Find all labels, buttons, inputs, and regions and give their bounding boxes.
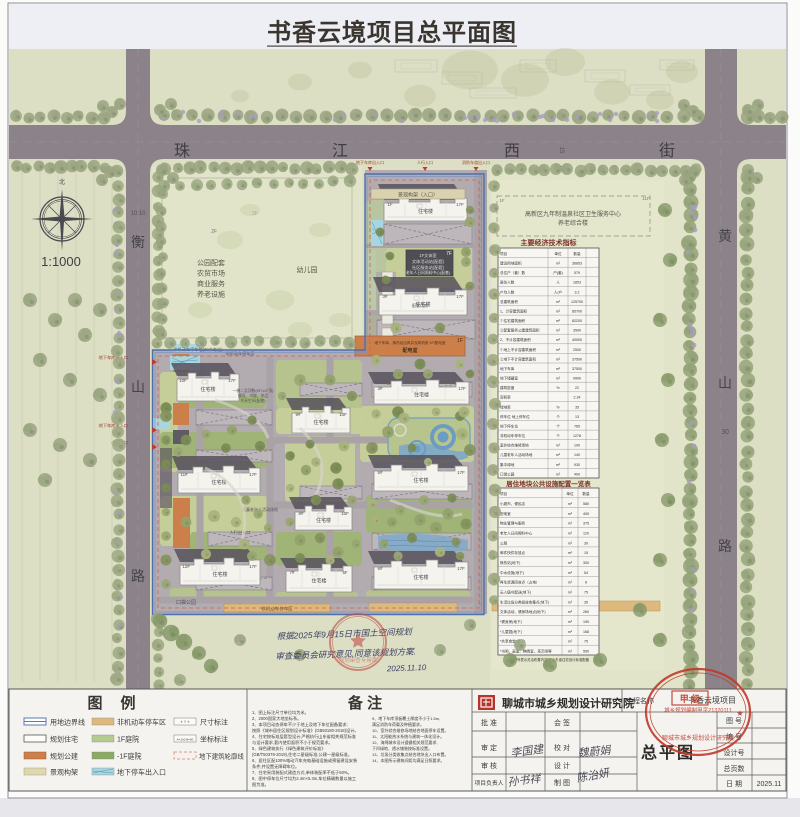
svg-text:11#: 11#: [181, 472, 189, 477]
svg-text:2、2000国家大地坐标系。: 2、2000国家大地坐标系。: [252, 715, 301, 722]
svg-text:老年人日间照料中心: 老年人日间照料中心: [500, 531, 533, 536]
svg-text:190: 190: [583, 620, 589, 624]
svg-text:配电室: 配电室: [500, 511, 511, 516]
svg-text:地下停车出入口: 地下停车出入口: [117, 768, 166, 777]
svg-text:审 核: 审 核: [481, 761, 497, 770]
svg-text:山: 山: [131, 379, 145, 395]
svg-text:幼儿园: 幼儿园: [297, 265, 318, 274]
svg-text:书香云境项目总平面图: 书香云境项目总平面图: [267, 19, 517, 47]
svg-text:1F文体室: 1F文体室: [419, 252, 436, 259]
svg-text:54: 54: [584, 571, 588, 575]
svg-text:2.34: 2.34: [574, 396, 581, 400]
svg-text:会 签: 会 签: [554, 718, 570, 727]
svg-text:-1F庭院: -1F庭院: [117, 752, 142, 761]
svg-text:580: 580: [583, 502, 589, 506]
svg-text:17F: 17F: [456, 202, 464, 207]
svg-text:1278: 1278: [573, 434, 581, 438]
svg-text:路: 路: [718, 538, 732, 554]
svg-text:黄: 黄: [718, 228, 732, 244]
svg-text:②配套服务公建建筑面积: ②配套服务公建建筑面积: [500, 328, 540, 333]
svg-text:9、地下车库顶板覆土厚度不小于1.5m,: 9、地下车库顶板覆土厚度不小于1.5m,: [372, 715, 440, 721]
svg-text:人行出入口: 人行出入口: [230, 529, 251, 536]
svg-text:街: 街: [659, 142, 675, 160]
svg-text:邮件快件存放点: 邮件快件存放点: [500, 550, 526, 555]
svg-text:*书吧、画室、棋牌室、茶艺吧等: *书吧、画室、棋牌室、茶艺吧等: [500, 648, 552, 653]
svg-text:13: 13: [575, 415, 579, 419]
svg-text:口袋公园: 口袋公园: [176, 599, 196, 606]
svg-text:集中绿地: 集中绿地: [500, 462, 515, 467]
svg-text:4、住宅按标准层套型设计,严格执行山东省相关规范标准: 4、住宅按标准层套型设计,严格执行山东省相关规范标准: [252, 733, 356, 740]
svg-text:小超市、便民店: 小超市、便民店: [500, 501, 526, 506]
svg-text:13、垃圾分类收集点结合地块出入口布置。: 13、垃圾分类收集点结合地块出入口布置。: [372, 751, 448, 757]
svg-text:公厕: 公厕: [500, 540, 508, 545]
svg-text:地下建筑轮廓线: 地下建筑轮廓线: [199, 752, 244, 761]
svg-text:17F: 17F: [456, 294, 464, 299]
svg-text:①地上不计容建筑面积: ①地上不计容建筑面积: [500, 347, 536, 352]
svg-text:1、计容建筑面积: 1、计容建筑面积: [500, 308, 528, 313]
svg-text:容积率: 容积率: [500, 395, 511, 400]
svg-text:1、图上标注尺寸单位均为米。: 1、图上标注尺寸单位均为米。: [252, 709, 309, 716]
svg-text:制 图: 制 图: [554, 778, 570, 787]
svg-text:口袋公园: 口袋公园: [500, 471, 515, 476]
svg-text:规划住宅: 规划住宅: [50, 735, 78, 744]
svg-text:35: 35: [584, 600, 588, 604]
svg-text:衡: 衡: [131, 234, 145, 250]
svg-text:★: ★: [736, 709, 743, 718]
svg-text:17F: 17F: [249, 472, 257, 477]
svg-text:健身、书咖、茶品: 健身、书咖、茶品: [238, 393, 269, 398]
svg-text:8#: 8#: [299, 511, 304, 516]
svg-text:765: 765: [574, 424, 580, 428]
svg-text:6#: 6#: [378, 566, 383, 571]
svg-text:景观构架: 景观构架: [50, 768, 78, 777]
svg-text:高新区九年制温泉社区卫生服务中心: 高新区九年制温泉社区卫生服务中心: [525, 210, 621, 218]
svg-text:10F: 10F: [341, 511, 349, 516]
svg-text:养老综合楼: 养老综合楼: [558, 219, 588, 227]
svg-text:15: 15: [558, 147, 564, 154]
svg-text:6、居住区配100%电动汽车充电基础设施或预留建设安装: 6、居住区配100%电动汽车充电基础设施或预留建设安装: [252, 757, 358, 764]
svg-text:消防车道出入口: 消防车道出入口: [462, 159, 490, 165]
svg-text:个: 个: [556, 423, 560, 428]
svg-text:*健身房(地下): *健身房(地下): [500, 619, 522, 624]
svg-text:配电室: 配电室: [402, 347, 417, 354]
svg-text:930: 930: [574, 463, 580, 467]
svg-text:17F: 17F: [249, 564, 257, 569]
svg-text:住宅楼: 住宅楼: [418, 208, 433, 215]
svg-text:405: 405: [583, 512, 589, 516]
svg-text:文体活动、健身场地点(地下): 文体活动、健身场地点(地下): [500, 609, 546, 614]
svg-text:总页数: 总页数: [724, 764, 745, 773]
svg-text:户均人数: 户均人数: [500, 289, 515, 294]
svg-text:1:1000: 1:1000: [41, 254, 81, 269]
svg-text:室外综合维修场地: 室外综合维修场地: [500, 443, 529, 448]
svg-text:建设用地面积: 建设用地面积: [500, 261, 522, 266]
svg-text:3#: 3#: [383, 294, 388, 299]
svg-text:规划审查专用章: 规划审查专用章: [339, 656, 378, 664]
svg-text:17F: 17F: [457, 566, 465, 571]
svg-text:聊城市城乡规划设计研究院: 聊城市城乡规划设计研究院: [662, 734, 734, 742]
svg-text:3#: 3#: [378, 386, 383, 391]
svg-text:商业服务: 商业服务: [197, 279, 225, 288]
svg-text:7#: 7#: [290, 570, 295, 575]
svg-text:7、住宅采用装配式建造方式,单体装配率不低于50%。: 7、住宅采用装配式建造方式,单体装配率不低于50%。: [252, 769, 352, 776]
svg-text:375: 375: [583, 522, 589, 526]
svg-text:住宅楼: 住宅楼: [313, 419, 328, 426]
svg-text:住宅楼: 住宅楼: [200, 386, 215, 393]
svg-text:30: 30: [584, 541, 588, 545]
svg-text:住宅楼: 住宅楼: [212, 571, 227, 578]
svg-text:1F: 1F: [387, 202, 392, 207]
svg-text:文体活动站(配套): 文体活动站(配套): [412, 258, 445, 265]
svg-text:非机动车停车区: 非机动车停车区: [117, 718, 166, 727]
svg-text:社区服务站(配套): 社区服务站(配套): [412, 264, 445, 271]
svg-text:农贸市场: 农贸市场: [197, 269, 225, 278]
svg-text:人: 人: [556, 280, 560, 285]
svg-text:82200: 82200: [572, 319, 582, 323]
svg-text:2500: 2500: [573, 348, 581, 352]
svg-text:17F: 17F: [228, 378, 236, 383]
svg-text:6: 6: [585, 581, 587, 585]
svg-text:项目: 项目: [500, 251, 507, 256]
svg-text:2025.11.10: 2025.11.10: [386, 663, 427, 673]
svg-text:例: 例: [120, 694, 135, 712]
svg-text:物业管理与服务: 物业管理与服务: [500, 521, 526, 526]
svg-text:300: 300: [583, 561, 589, 565]
svg-text:A=100 B=50: A=100 B=50: [177, 738, 194, 742]
svg-text:15: 15: [584, 551, 588, 555]
svg-text:按照《城市居住区规划设计标准》(GB50180-2018)设: 按照《城市居住区规划设计标准》(GB50180-2018)设计。: [252, 727, 359, 734]
svg-text:项目: 项目: [500, 491, 507, 496]
svg-text:1853: 1853: [573, 281, 581, 285]
svg-text:设 计: 设 计: [554, 761, 570, 770]
svg-text:3、本项目动态停车不少于地上及地下车位配备要求;: 3、本项目动态停车不少于地上及地下车位配备要求;: [252, 721, 348, 728]
svg-text:居住人数: 居住人数: [500, 280, 515, 285]
svg-text:住宅楼: 住宅楼: [316, 517, 331, 524]
svg-text:地下车库出入口: 地下车库出入口: [356, 159, 384, 165]
svg-text:3500: 3500: [573, 329, 581, 333]
svg-text:10 10: 10 10: [130, 211, 146, 217]
svg-text:190: 190: [574, 444, 580, 448]
svg-text:珠: 珠: [174, 142, 190, 160]
svg-text:①住宅建筑面积: ①住宅建筑面积: [500, 318, 526, 323]
svg-text:居住地块公共设施配置一览表: 居住地块公共设施配置一览表: [506, 479, 591, 488]
svg-text:图: 图: [87, 695, 102, 712]
svg-text:北: 北: [59, 178, 65, 186]
svg-text:579: 579: [574, 271, 580, 275]
svg-text:批 准: 批 准: [481, 718, 497, 727]
svg-text:户(套): 户(套): [553, 270, 563, 275]
svg-text:住宅楼: 住宅楼: [311, 578, 326, 585]
svg-text:75: 75: [584, 640, 588, 644]
svg-text:1F: 1F: [457, 338, 463, 344]
svg-text:17F: 17F: [458, 386, 466, 391]
svg-text:40000: 40000: [572, 338, 582, 342]
svg-text:数量: 数量: [573, 251, 581, 256]
svg-text:168: 168: [583, 630, 589, 634]
svg-text:建筑密度: 建筑密度: [500, 385, 515, 390]
svg-text:共享空间(配套): 共享空间(配套): [240, 398, 266, 403]
svg-text:儿童老年人活动场地: 儿童老年人活动场地: [500, 452, 533, 457]
svg-text:个: 个: [556, 414, 560, 419]
svg-text:停车位 地上停车位: 停车位 地上停车位: [500, 414, 530, 419]
svg-text:5F: 5F: [342, 570, 347, 575]
svg-text:非机动车停车区: 非机动车停车区: [261, 606, 293, 613]
svg-text:生活垃圾分类投放收集点(地下): 生活垃圾分类投放收集点(地下): [500, 599, 549, 604]
svg-text:2F: 2F: [211, 229, 217, 235]
svg-text:10F: 10F: [179, 378, 187, 383]
svg-text:下凹绿地、透水铺装按标准设置。: 下凹绿地、透水铺装按标准设置。: [372, 745, 432, 751]
svg-text:75: 75: [584, 590, 588, 594]
svg-text:景观构架（入口）: 景观构架（入口）: [398, 192, 438, 199]
svg-text:②地下不计容建筑面积: ②地下不计容建筑面积: [500, 356, 536, 361]
svg-text:住宅楼: 住宅楼: [413, 574, 428, 581]
svg-text:人/户: 人/户: [554, 289, 563, 294]
svg-text:36853: 36853: [572, 262, 582, 266]
svg-text:*儿童园(地下): *儿童园(地下): [500, 629, 522, 634]
svg-text:14、本图所示建筑间距均满足日照要求。: 14、本图所示建筑间距均满足日照要求。: [372, 757, 444, 763]
svg-text:12#: 12#: [182, 564, 190, 569]
svg-text:聊城市城乡规划设计研究院: 聊城市城乡规划设计研究院: [502, 696, 634, 710]
svg-text:项目负责人: 项目负责人: [475, 779, 504, 787]
svg-text:规划公建: 规划公建: [50, 752, 78, 761]
svg-text:22: 22: [575, 386, 579, 390]
svg-text:养老设施: 养老设施: [197, 290, 225, 299]
svg-text:满足消防车荷载及种植要求。: 满足消防车荷载及种植要求。: [372, 721, 424, 727]
svg-text:(GB/T50378-2019),住宅二星级标准,公建一星级: (GB/T50378-2019),住宅二星级标准,公建一星级标准。: [252, 751, 352, 758]
svg-text:400: 400: [574, 472, 580, 476]
svg-text:绿地率: 绿地率: [500, 404, 511, 409]
svg-text:2、不计容建筑面积: 2、不计容建筑面积: [500, 337, 531, 342]
svg-text:11F: 11F: [642, 196, 650, 201]
svg-text:1F: 1F: [499, 198, 505, 203]
svg-text:85700: 85700: [572, 309, 582, 313]
svg-text:日 期: 日 期: [726, 780, 742, 788]
svg-text:用地边界线: 用地边界线: [50, 718, 85, 727]
svg-text:17F: 17F: [457, 470, 465, 475]
svg-text:图为准。: 图为准。: [252, 781, 269, 788]
svg-text:图 号: 图 号: [726, 717, 742, 725]
svg-text:8、图中停车位尺寸均为2.4m×5.3m,车位精确数量以施工: 8、图中停车位尺寸均为2.4m×5.3m,车位精确数量以施工: [252, 775, 356, 782]
svg-text:125700: 125700: [571, 300, 583, 304]
svg-text:地下车库: 地下车库: [500, 366, 515, 371]
svg-text:数量: 数量: [582, 491, 590, 496]
svg-text:中水设施(地下): 中水设施(地下): [500, 570, 524, 575]
svg-text:校 对: 校 对: [554, 743, 570, 752]
svg-text:30: 30: [721, 429, 729, 436]
svg-text:与设计要求,套内使用面积不小于规范要求。: 与设计要求,套内使用面积不小于规范要求。: [252, 739, 333, 746]
svg-text:260: 260: [583, 610, 589, 614]
svg-text:35: 35: [575, 405, 579, 409]
svg-text:配套用房: 配套用房: [412, 302, 428, 308]
svg-text:10F: 10F: [339, 412, 347, 417]
svg-text:地下车库、换热站出风井及风机房 1F/配电室: 地下车库、换热站出风井及风机房 1F/配电室: [375, 340, 446, 345]
svg-text:140: 140: [574, 453, 580, 457]
svg-text:山: 山: [718, 375, 732, 391]
svg-text:37500: 37500: [572, 367, 582, 371]
svg-text:550: 550: [583, 649, 589, 653]
svg-text:10、室外综合维修场地结合地面停车设置。: 10、室外综合维修场地结合地面停车设置。: [372, 727, 448, 733]
svg-text:个: 个: [556, 433, 560, 438]
svg-text:+ ⁵ +: + ⁵ +: [180, 720, 190, 725]
svg-text:坐标标注: 坐标标注: [200, 735, 228, 744]
svg-text:1F庭院: 1F庭院: [117, 735, 139, 744]
svg-text:2025.11: 2025.11: [757, 781, 782, 788]
svg-text:路: 路: [131, 568, 145, 584]
svg-text:审 定: 审 定: [481, 743, 497, 752]
svg-text:总平图: 总平图: [641, 743, 695, 762]
svg-text:5、绿色建筑执行《绿色建筑评价标准》: 5、绿色建筑执行《绿色建筑评价标准》: [252, 745, 326, 752]
svg-text:换热站(地下): 换热站(地下): [500, 560, 520, 565]
svg-text:尺寸标注: 尺寸标注: [200, 718, 228, 727]
svg-text:西: 西: [504, 143, 520, 160]
svg-text:单位: 单位: [566, 491, 574, 496]
svg-text:12、海绵城市设计遵循相关规范要求,: 12、海绵城市设计遵循相关规范要求,: [372, 739, 438, 745]
svg-text:城乡规划编制甲字21320111: 城乡规划编制甲字21320111: [664, 706, 732, 714]
svg-text:条件,并设置无障碍车位。: 条件,并设置无障碍车位。: [252, 763, 299, 770]
svg-text:无人值守配送(地下): 无人值守配送(地下): [500, 589, 531, 594]
svg-text:120: 120: [583, 532, 589, 536]
svg-text:老年人日间照料中心(配套): 老年人日间照料中心(配套): [406, 270, 451, 275]
svg-text:甲 级: 甲 级: [680, 693, 702, 704]
svg-text:5#: 5#: [378, 470, 383, 475]
svg-text:非机动车停车位: 非机动车停车位: [500, 433, 526, 438]
svg-text:住宅楼: 住宅楼: [413, 477, 428, 484]
svg-text:备 注: 备 注: [347, 694, 382, 712]
svg-text:总建筑面积: 总建筑面积: [500, 299, 518, 304]
svg-text:人行入口: 人行入口: [417, 159, 433, 165]
svg-text:一梯二及顶数(6F/11F顶): 一梯二及顶数(6F/11F顶): [233, 388, 275, 393]
svg-text:11、太阳能热水系统与建筑一体化设计。: 11、太阳能热水系统与建筑一体化设计。: [372, 733, 444, 739]
svg-text:9#: 9#: [296, 412, 301, 417]
svg-text:地下停车位: 地下停车位: [500, 423, 518, 428]
svg-text:再生资源回收点（占地）: 再生资源回收点（占地）: [500, 580, 540, 585]
svg-text:9900: 9900: [573, 377, 581, 381]
svg-text:地下储藏室: 地下储藏室: [500, 376, 518, 381]
svg-text:总住户（套）数: 总住户（套）数: [500, 270, 526, 275]
svg-text:单位: 单位: [554, 251, 562, 256]
svg-text:主要经济技术指标: 主要经济技术指标: [521, 238, 577, 247]
svg-text:3.2: 3.2: [575, 290, 580, 294]
svg-text:江: 江: [332, 142, 348, 160]
svg-text:37500: 37500: [572, 357, 582, 361]
svg-text:住宅楼: 住宅楼: [414, 392, 429, 399]
svg-text:设计号: 设计号: [724, 748, 745, 757]
svg-text:公园配套: 公园配套: [197, 258, 225, 267]
svg-text:7F: 7F: [446, 251, 452, 257]
